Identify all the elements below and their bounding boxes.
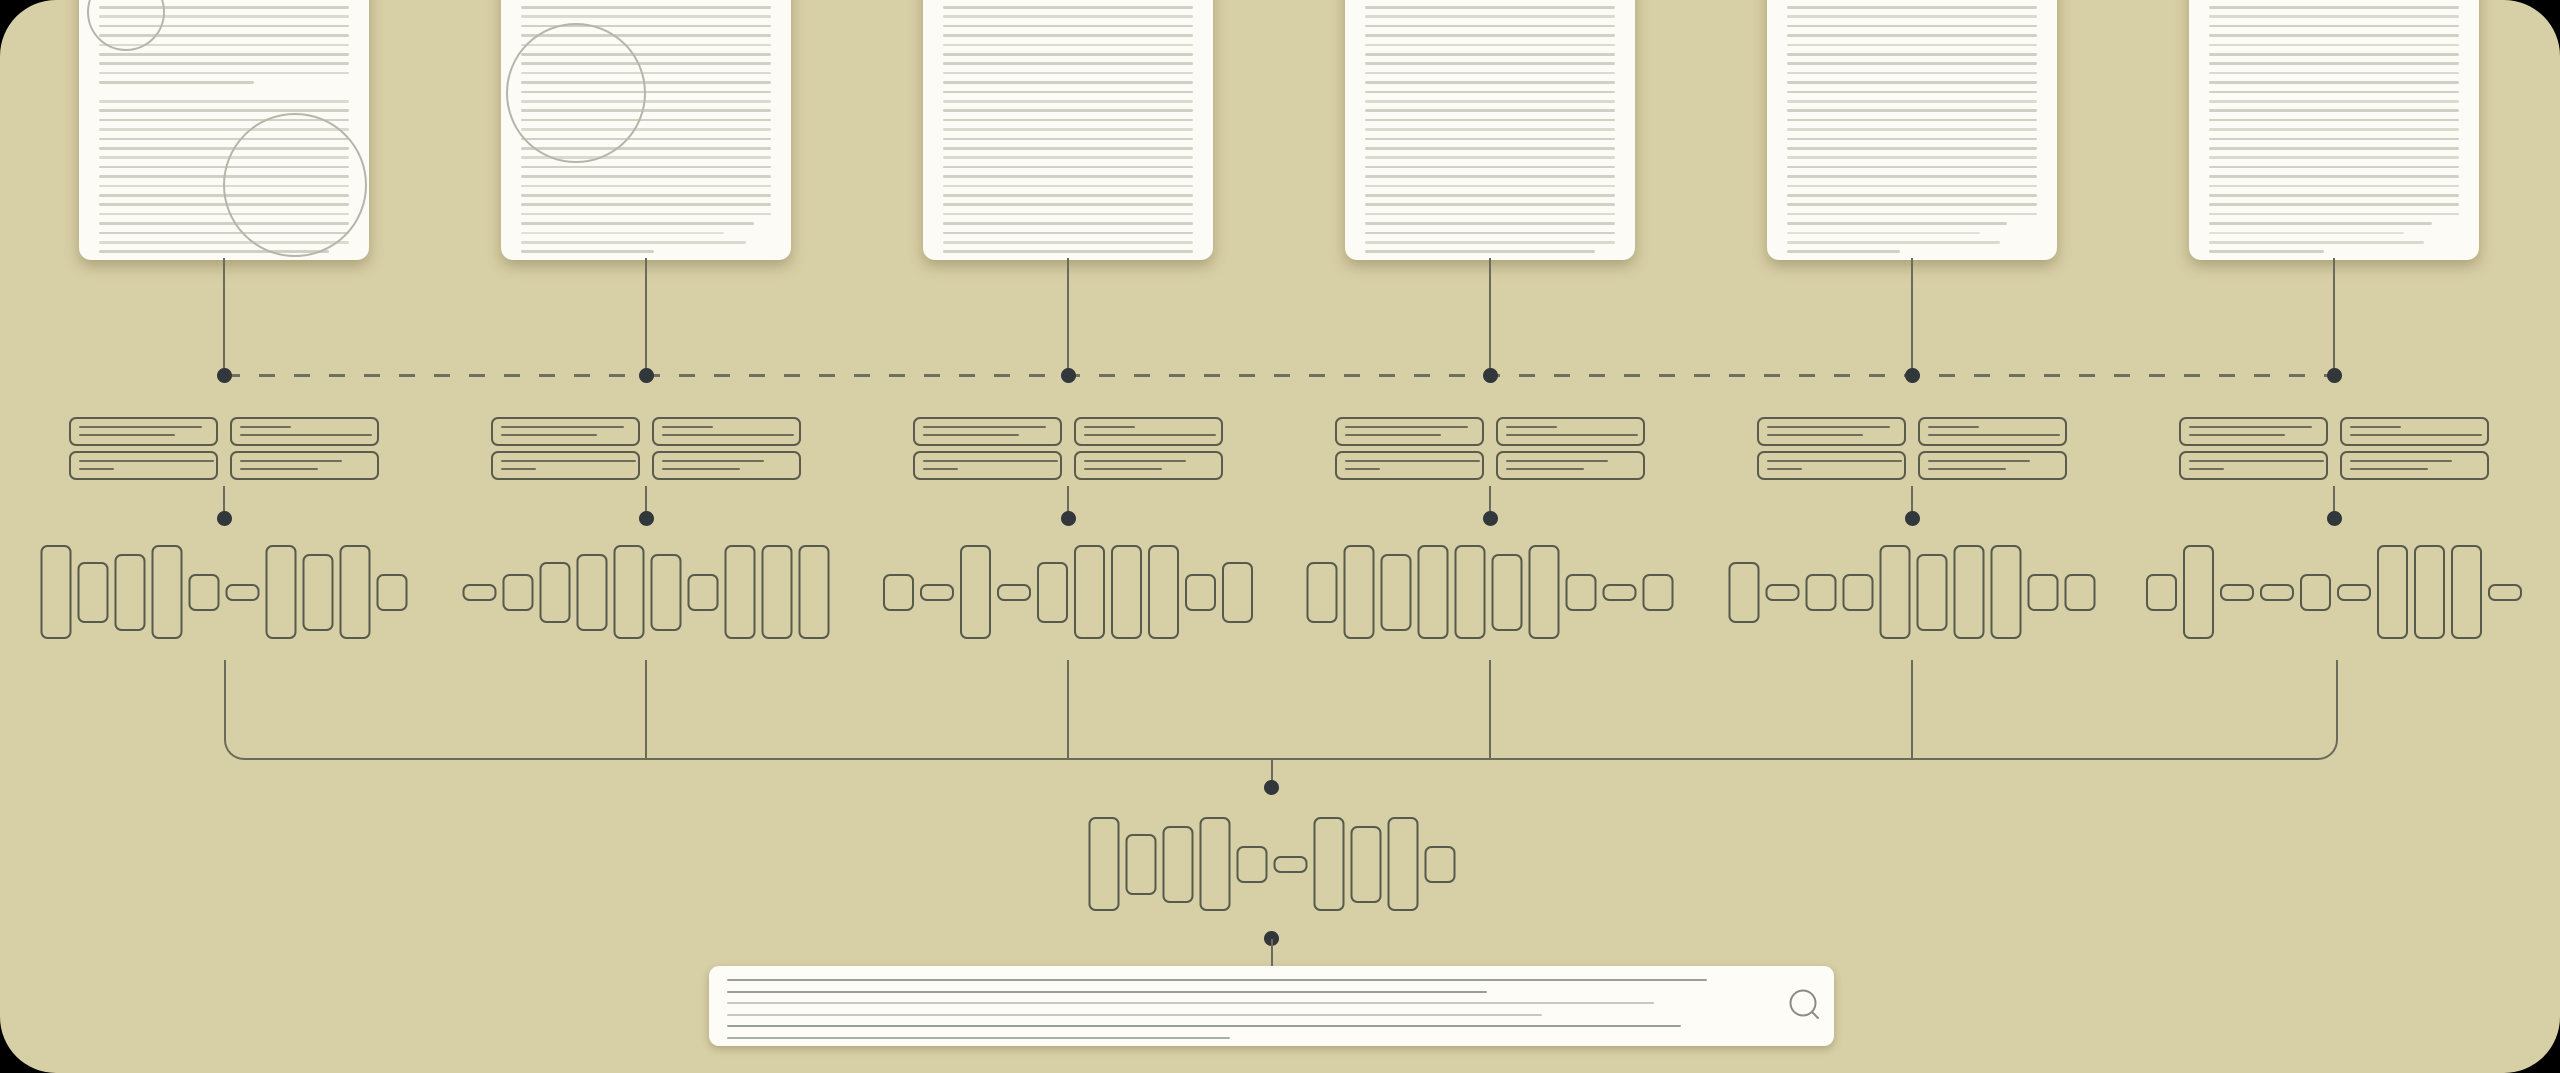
chunk-card (2179, 451, 2328, 480)
doc-text-line (1787, 100, 2037, 103)
chunk-card-row (1757, 417, 2067, 446)
doc-text-line (2209, 109, 2459, 112)
token-xl (266, 545, 297, 639)
doc-text-line (1787, 128, 2037, 131)
chunk-card-row (69, 451, 379, 480)
merge-bracket (224, 660, 2338, 760)
doc-text-line (2209, 194, 2459, 197)
chunk-card (1074, 417, 1223, 446)
token-xl (2414, 545, 2445, 639)
chunk-card-line (1928, 460, 2030, 462)
doc-text-line (1787, 62, 2037, 65)
document-page-1 (79, 0, 369, 260)
chunk-card-line (2189, 434, 2285, 436)
doc-text-line (943, 91, 1193, 94)
token-xl (725, 545, 756, 639)
token-l (1163, 826, 1194, 903)
doc-text-line (943, 128, 1193, 131)
token-s (377, 574, 408, 611)
doc-text-line (521, 194, 771, 197)
doc-text-line (943, 138, 1193, 141)
token-m (1126, 834, 1157, 895)
doc-text-line (1365, 62, 1615, 65)
chunk-card-line (1345, 426, 1468, 428)
chunk-card-line (662, 460, 764, 462)
doc-text-line (1787, 147, 2037, 150)
chunk-card (652, 417, 801, 446)
chunk-card-row (1757, 451, 2067, 480)
token-s (189, 574, 220, 611)
token-s (1237, 846, 1268, 883)
token-l (1917, 554, 1948, 631)
doc-text-line (521, 6, 771, 9)
chunk-card-line (2350, 460, 2452, 462)
doc-text-line (943, 250, 1193, 253)
doc-text-line (1787, 166, 2037, 169)
doc-text-line (2209, 62, 2459, 65)
doc-text-line (2209, 53, 2459, 56)
token-s (2300, 574, 2331, 611)
doc-text-line (1787, 185, 2037, 188)
chunk-card-line (923, 434, 1019, 436)
token-m (540, 562, 571, 623)
token-l (1492, 554, 1523, 631)
chunk-card (1074, 451, 1223, 480)
doc-text-line (943, 34, 1193, 37)
doc-text-line (2209, 128, 2459, 131)
chunk-card-line (1084, 460, 1186, 462)
token-xl (1991, 545, 2022, 639)
chunk-card-line (1345, 434, 1441, 436)
chunk-card-line (1767, 468, 1802, 470)
chunk-card-line (240, 460, 342, 462)
chunk-card (1918, 417, 2067, 446)
doc-text-line (521, 166, 771, 169)
doc-text-line (2209, 213, 2459, 216)
chunk-card-line (2350, 434, 2482, 436)
doc-text-line (2209, 81, 2459, 84)
chunk-card-line (501, 468, 536, 470)
token-s (1566, 574, 1597, 611)
chunk-card (1496, 417, 1645, 446)
token-pill (1274, 856, 1308, 873)
search-text-line (727, 991, 1487, 993)
bracket-inner-line (645, 660, 647, 758)
doc-connector-line (1911, 258, 1913, 375)
token-s (1806, 574, 1837, 611)
token-xl (1314, 817, 1345, 911)
token-l (651, 554, 682, 631)
search-text-line (727, 979, 1707, 981)
merge-node-dot (1264, 780, 1279, 795)
doc-text-line (1365, 6, 1615, 9)
chunk-card-line (1345, 460, 1480, 462)
token-xl (1418, 545, 1449, 639)
doc-text-line (2209, 119, 2459, 122)
token-xl (1074, 545, 1105, 639)
doc-text-line (1787, 222, 2007, 225)
doc-text-line (1365, 34, 1615, 37)
token-xl (1111, 545, 1142, 639)
chunk-card-line (662, 426, 713, 428)
token-xl (960, 545, 991, 639)
chunk-card (652, 451, 801, 480)
merged-token-sequence (1089, 817, 1456, 911)
chunk-card-line (1084, 426, 1135, 428)
doc-text-line (1365, 53, 1615, 56)
document-page-4 (1345, 0, 1635, 260)
search-bar[interactable] (709, 966, 1834, 1046)
chunk-card (69, 417, 218, 446)
token-pill (1603, 584, 1637, 601)
token-s (2028, 574, 2059, 611)
doc-text-line (2209, 156, 2459, 159)
doc-text-line (1365, 222, 1615, 225)
token-xl (1148, 545, 1179, 639)
doc-text-line (521, 222, 754, 225)
chunk-card (2340, 451, 2489, 480)
token-pill (226, 584, 260, 601)
chunk-card-row (491, 417, 801, 446)
doc-text-line (2209, 241, 2424, 244)
doc-text-line (943, 119, 1193, 122)
chunk-card-line (1084, 468, 1162, 470)
chunk-card-line (1084, 434, 1216, 436)
chunk-node-dot (1483, 511, 1498, 526)
chunk-card-line (923, 460, 1058, 462)
doc-text-line (1787, 72, 2037, 75)
doc-text-line (1365, 147, 1615, 150)
doc-connector-line (645, 258, 647, 375)
token-sequence-6 (2146, 545, 2522, 639)
token-xl (1089, 817, 1120, 911)
token-s (688, 574, 719, 611)
doc-text-line (943, 100, 1193, 103)
doc-connector-line (223, 258, 225, 375)
token-s (503, 574, 534, 611)
chunk-card (1496, 451, 1645, 480)
chunk-card-row (913, 451, 1223, 480)
chunk-card-line (1767, 434, 1863, 436)
chunk-card-line (923, 468, 958, 470)
token-s (1185, 574, 1216, 611)
doc-text-line (2209, 222, 2432, 225)
token-xl (41, 545, 72, 639)
doc-text-line (521, 185, 771, 188)
doc-text-line (943, 81, 1193, 84)
timeline-node-dot (639, 368, 654, 383)
chunk-card-line (79, 434, 175, 436)
doc-text-line (943, 62, 1193, 65)
doc-text-line (521, 241, 746, 244)
chunk-card-line (79, 460, 214, 462)
doc-text-line (943, 6, 1193, 9)
token-pill (2488, 584, 2522, 601)
doc-text-line (1787, 213, 2037, 216)
token-m (1307, 562, 1338, 623)
chunk-card-row (913, 417, 1223, 446)
chunk-card-line (240, 434, 372, 436)
doc-text-line (2209, 6, 2459, 9)
chunk-card-line (501, 426, 624, 428)
doc-text-line (1787, 6, 2037, 9)
doc-text-line (2209, 72, 2459, 75)
doc-text-line (943, 25, 1193, 28)
token-l (1381, 554, 1412, 631)
doc-text-line (1787, 241, 2000, 244)
doc-text-line (1787, 194, 2037, 197)
token-m (1729, 562, 1760, 623)
doc-text-line (943, 175, 1193, 178)
doc-text-line (1365, 166, 1615, 169)
search-text-line (727, 1037, 1230, 1039)
chunk-card-line (1506, 434, 1638, 436)
doc-text-line (99, 53, 349, 56)
token-xl (340, 545, 371, 639)
doc-connector-line (2333, 258, 2335, 375)
chunk-card-line (1767, 426, 1890, 428)
token-sequence-3 (883, 545, 1253, 639)
doc-text-line (1365, 91, 1615, 94)
chunk-card-line (501, 460, 636, 462)
chunk-card-row (2179, 417, 2489, 446)
chunk-card (913, 417, 1062, 446)
token-pill (2260, 584, 2294, 601)
chunk-card (1757, 451, 1906, 480)
chunk-card-line (1928, 468, 2006, 470)
doc-text-line (1787, 119, 2037, 122)
doc-text-line (943, 72, 1193, 75)
doc-text-line (1365, 138, 1615, 141)
chunk-card-line (1506, 468, 1584, 470)
doc-text-line (943, 241, 1193, 244)
token-xl (1880, 545, 1911, 639)
chunk-card-line (2350, 426, 2401, 428)
chunk-card-line (2189, 426, 2312, 428)
doc-text-line (2209, 166, 2459, 169)
token-m (78, 562, 109, 623)
search-text-line (727, 1025, 1681, 1027)
search-text-line (727, 1014, 1542, 1016)
chunk-card (2340, 417, 2489, 446)
token-l (115, 554, 146, 631)
token-pill (2220, 584, 2254, 601)
token-pill (997, 584, 1031, 601)
timeline-node-dot (1061, 368, 1076, 383)
doc-text-line (1365, 15, 1615, 18)
doc-text-line (1365, 194, 1615, 197)
doc-text-line (99, 81, 254, 84)
doc-text-line (521, 203, 771, 206)
pipeline-canvas (0, 0, 2560, 1073)
doc-text-line (2209, 15, 2459, 18)
token-sequence-4 (1307, 545, 1674, 639)
doc-text-line (2209, 25, 2459, 28)
token-s (1843, 574, 1874, 611)
chunk-node-dot (217, 511, 232, 526)
doc-text-line (521, 250, 654, 253)
doc-text-line (2209, 147, 2459, 150)
doc-text-line (2209, 185, 2459, 188)
token-xl (1954, 545, 1985, 639)
doc-text-line (1787, 175, 2037, 178)
doc-text-line (2209, 232, 2404, 235)
timeline-node-dot (1483, 368, 1498, 383)
doc-text-line (1365, 213, 1615, 216)
chunk-card (913, 451, 1062, 480)
doc-text-line (943, 53, 1193, 56)
doc-text-line (1365, 119, 1615, 122)
doc-text-line (943, 147, 1193, 150)
doc-text-line (1787, 91, 2037, 94)
doc-text-line (1365, 128, 1615, 131)
token-m (1222, 562, 1253, 623)
chunk-card (491, 451, 640, 480)
doc-text-line (99, 62, 349, 65)
decorative-circle (506, 23, 646, 163)
chunk-card-line (79, 426, 202, 428)
doc-text-line (2209, 100, 2459, 103)
doc-text-line (1365, 156, 1615, 159)
doc-text-line (1787, 138, 2037, 141)
chunk-card-line (2189, 468, 2224, 470)
token-m (1037, 562, 1068, 623)
token-xl (762, 545, 793, 639)
dashed-timeline-line (224, 374, 2334, 377)
doc-text-line (1365, 185, 1615, 188)
chunk-card-line (1506, 426, 1557, 428)
bracket-inner-line (1489, 660, 1491, 758)
token-xl (799, 545, 830, 639)
search-stem-line (1271, 939, 1273, 967)
chunk-card-line (501, 434, 597, 436)
document-page-5 (1767, 0, 2057, 260)
doc-text-line (1787, 109, 2037, 112)
token-xl (1455, 545, 1486, 639)
doc-text-line (1365, 250, 1595, 253)
search-text-line (727, 1002, 1654, 1004)
doc-text-line (1787, 81, 2037, 84)
token-l (1351, 826, 1382, 903)
chunk-card-line (79, 468, 114, 470)
doc-text-line (2209, 203, 2459, 206)
doc-text-line (943, 44, 1193, 47)
token-sequence-5 (1729, 545, 2096, 639)
chunk-card-row (2179, 451, 2489, 480)
chunk-card-line (240, 426, 291, 428)
doc-text-line (943, 109, 1193, 112)
token-l (303, 554, 334, 631)
chunk-card (491, 417, 640, 446)
chunk-card-line (1506, 460, 1608, 462)
token-s (1425, 846, 1456, 883)
timeline-node-dot (217, 368, 232, 383)
token-xl (152, 545, 183, 639)
chunk-card (1757, 417, 1906, 446)
doc-text-line (2209, 34, 2459, 37)
doc-text-line (1787, 15, 2037, 18)
chunk-card-row (1335, 417, 1645, 446)
chunk-card (69, 451, 218, 480)
token-xl (2451, 545, 2482, 639)
doc-text-line (2209, 138, 2459, 141)
doc-text-line (521, 15, 771, 18)
doc-text-line (1365, 25, 1615, 28)
token-xl (2377, 545, 2408, 639)
chunk-card-line (2189, 460, 2324, 462)
doc-text-line (943, 203, 1193, 206)
doc-text-line (943, 15, 1193, 18)
doc-text-line (1787, 156, 2037, 159)
chunk-card-line (923, 426, 1046, 428)
chunk-card-line (240, 468, 318, 470)
token-xl (2183, 545, 2214, 639)
chunk-card (2179, 417, 2328, 446)
chunk-card-line (662, 468, 740, 470)
bracket-inner-line (1911, 660, 1913, 758)
token-s (883, 574, 914, 611)
chunk-node-dot (1905, 511, 1920, 526)
doc-text-line (1365, 241, 1615, 244)
doc-text-line (1365, 175, 1615, 178)
doc-text-line (1787, 53, 2037, 56)
doc-text-line (1365, 72, 1615, 75)
token-xl (614, 545, 645, 639)
chunk-card (1918, 451, 2067, 480)
doc-text-line (943, 232, 1193, 235)
doc-connector-line (1067, 258, 1069, 375)
doc-text-line (943, 185, 1193, 188)
doc-text-line (943, 222, 1193, 225)
chunk-card (1335, 451, 1484, 480)
doc-text-line (2209, 250, 2324, 253)
chunk-card-row (491, 451, 801, 480)
token-xl (1388, 817, 1419, 911)
token-sequence-2 (463, 545, 830, 639)
doc-text-line (1365, 44, 1615, 47)
doc-text-line (1365, 232, 1615, 235)
doc-text-line (2209, 91, 2459, 94)
timeline-node-dot (2327, 368, 2342, 383)
doc-text-line (99, 100, 349, 103)
doc-text-line (1787, 203, 2037, 206)
doc-text-line (1787, 25, 2037, 28)
timeline-node-dot (1905, 368, 1920, 383)
token-pill (920, 584, 954, 601)
doc-text-line (1365, 109, 1615, 112)
doc-text-line (943, 213, 1193, 216)
token-pill (463, 584, 497, 601)
doc-text-line (521, 175, 771, 178)
chunk-card-row (1335, 451, 1645, 480)
document-page-2 (501, 0, 791, 260)
token-pill (2337, 584, 2371, 601)
document-page-6 (2189, 0, 2479, 260)
token-pill (1766, 584, 1800, 601)
search-icon[interactable] (1787, 987, 1823, 1023)
chunk-node-dot (2327, 511, 2342, 526)
token-s (2146, 574, 2177, 611)
chunk-card-row (69, 417, 379, 446)
chunk-node-dot (1061, 511, 1076, 526)
chunk-card-line (1345, 468, 1380, 470)
doc-text-line (1365, 203, 1615, 206)
chunk-card (1335, 417, 1484, 446)
doc-text-line (1365, 100, 1615, 103)
doc-text-line (943, 194, 1193, 197)
doc-text-line (1787, 34, 2037, 37)
decorative-circle (223, 113, 367, 257)
